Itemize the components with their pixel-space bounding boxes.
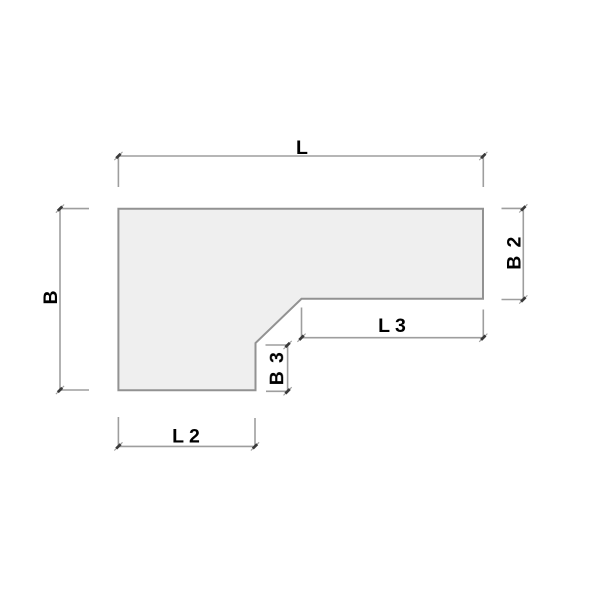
svg-text:L 2: L 2 [172,426,200,448]
svg-text:B 2: B 2 [504,235,526,270]
svg-text:L 3: L 3 [378,315,406,337]
svg-text:B 3: B 3 [266,351,288,386]
svg-text:L: L [296,137,308,159]
svg-text:B: B [40,290,62,304]
